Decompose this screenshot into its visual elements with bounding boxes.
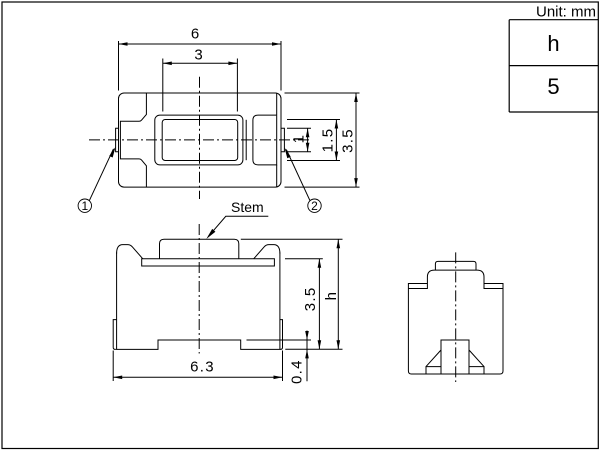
svg-text:0.4: 0.4 xyxy=(288,359,305,384)
svg-text:3: 3 xyxy=(194,47,202,64)
svg-text:6: 6 xyxy=(191,26,199,43)
svg-text:3.5: 3.5 xyxy=(339,128,356,153)
svg-text:h: h xyxy=(547,31,559,56)
svg-text:1: 1 xyxy=(81,199,88,213)
svg-text:1.5: 1.5 xyxy=(319,128,336,153)
svg-text:Unit: mm: Unit: mm xyxy=(536,3,596,20)
svg-text:h: h xyxy=(323,292,340,300)
svg-text:3.5: 3.5 xyxy=(302,287,319,312)
svg-text:Stem: Stem xyxy=(231,199,264,215)
svg-text:6.3: 6.3 xyxy=(190,358,215,375)
svg-text:1: 1 xyxy=(290,135,307,143)
svg-text:5: 5 xyxy=(547,74,559,99)
svg-text:2: 2 xyxy=(311,199,318,213)
